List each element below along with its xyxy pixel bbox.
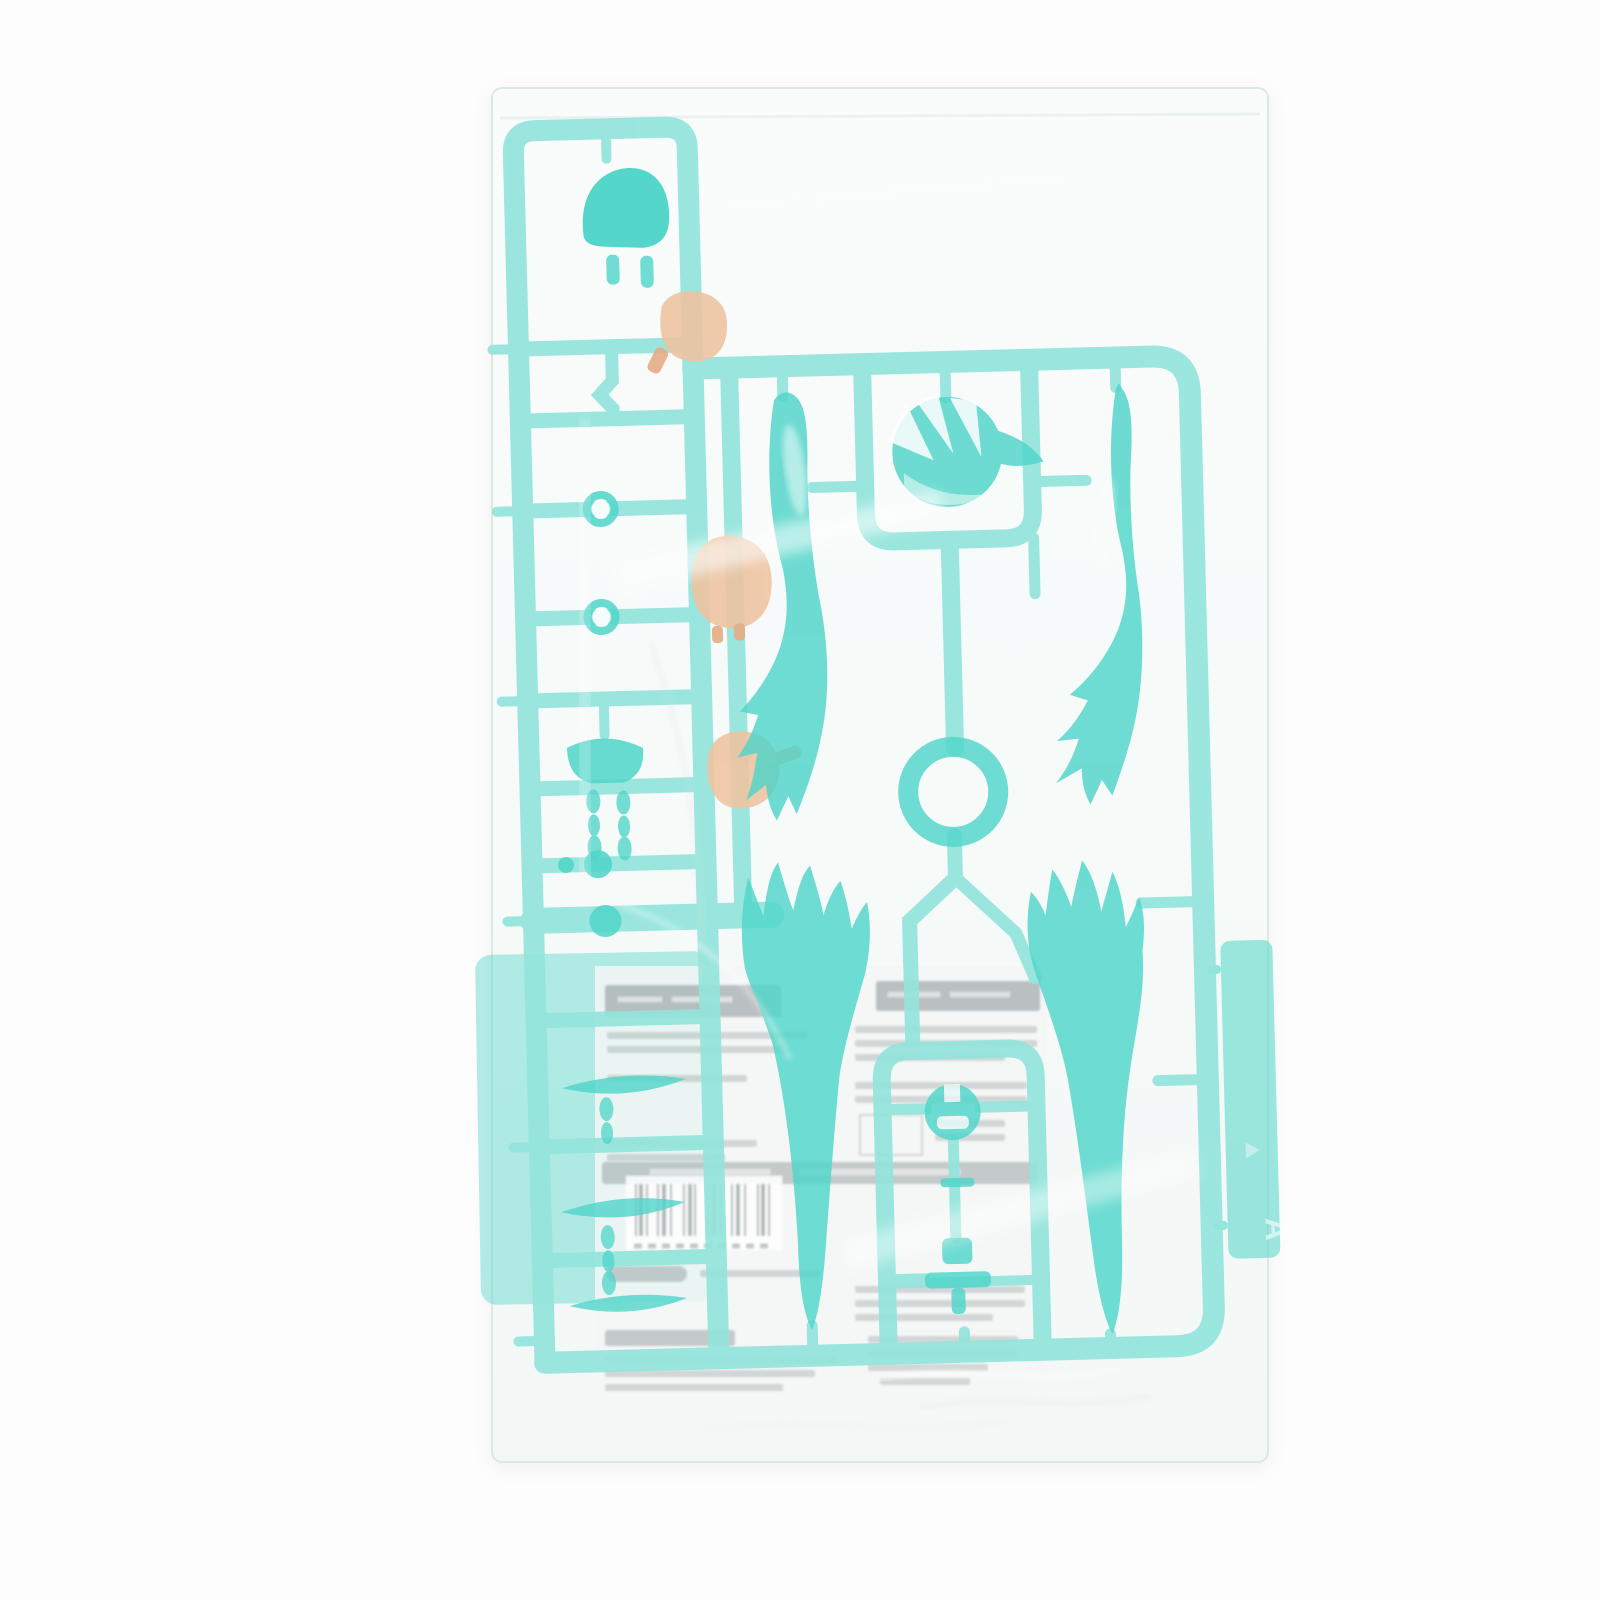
small-ring-part [586,495,615,524]
paper-label-pill [607,1266,687,1282]
tag-plate [1220,940,1280,1259]
bowl-stub [604,699,605,735]
small-ring-part [587,603,616,632]
tag-letter: A [1258,1217,1295,1242]
tag-stub [1214,1221,1228,1230]
tag-stub [1207,965,1221,974]
product-photo: Sealed model-kit runner — product photo [0,0,1600,1600]
skin-head-part-1 [659,290,728,362]
center-stem [950,540,955,748]
skin-part-stub [712,626,723,643]
part-small-bar [940,1177,974,1187]
photo-canvas: Sealed model-kit runner — product photo [0,0,1600,1600]
skin-part-stub [734,623,745,640]
crinkle-fold [580,420,590,900]
